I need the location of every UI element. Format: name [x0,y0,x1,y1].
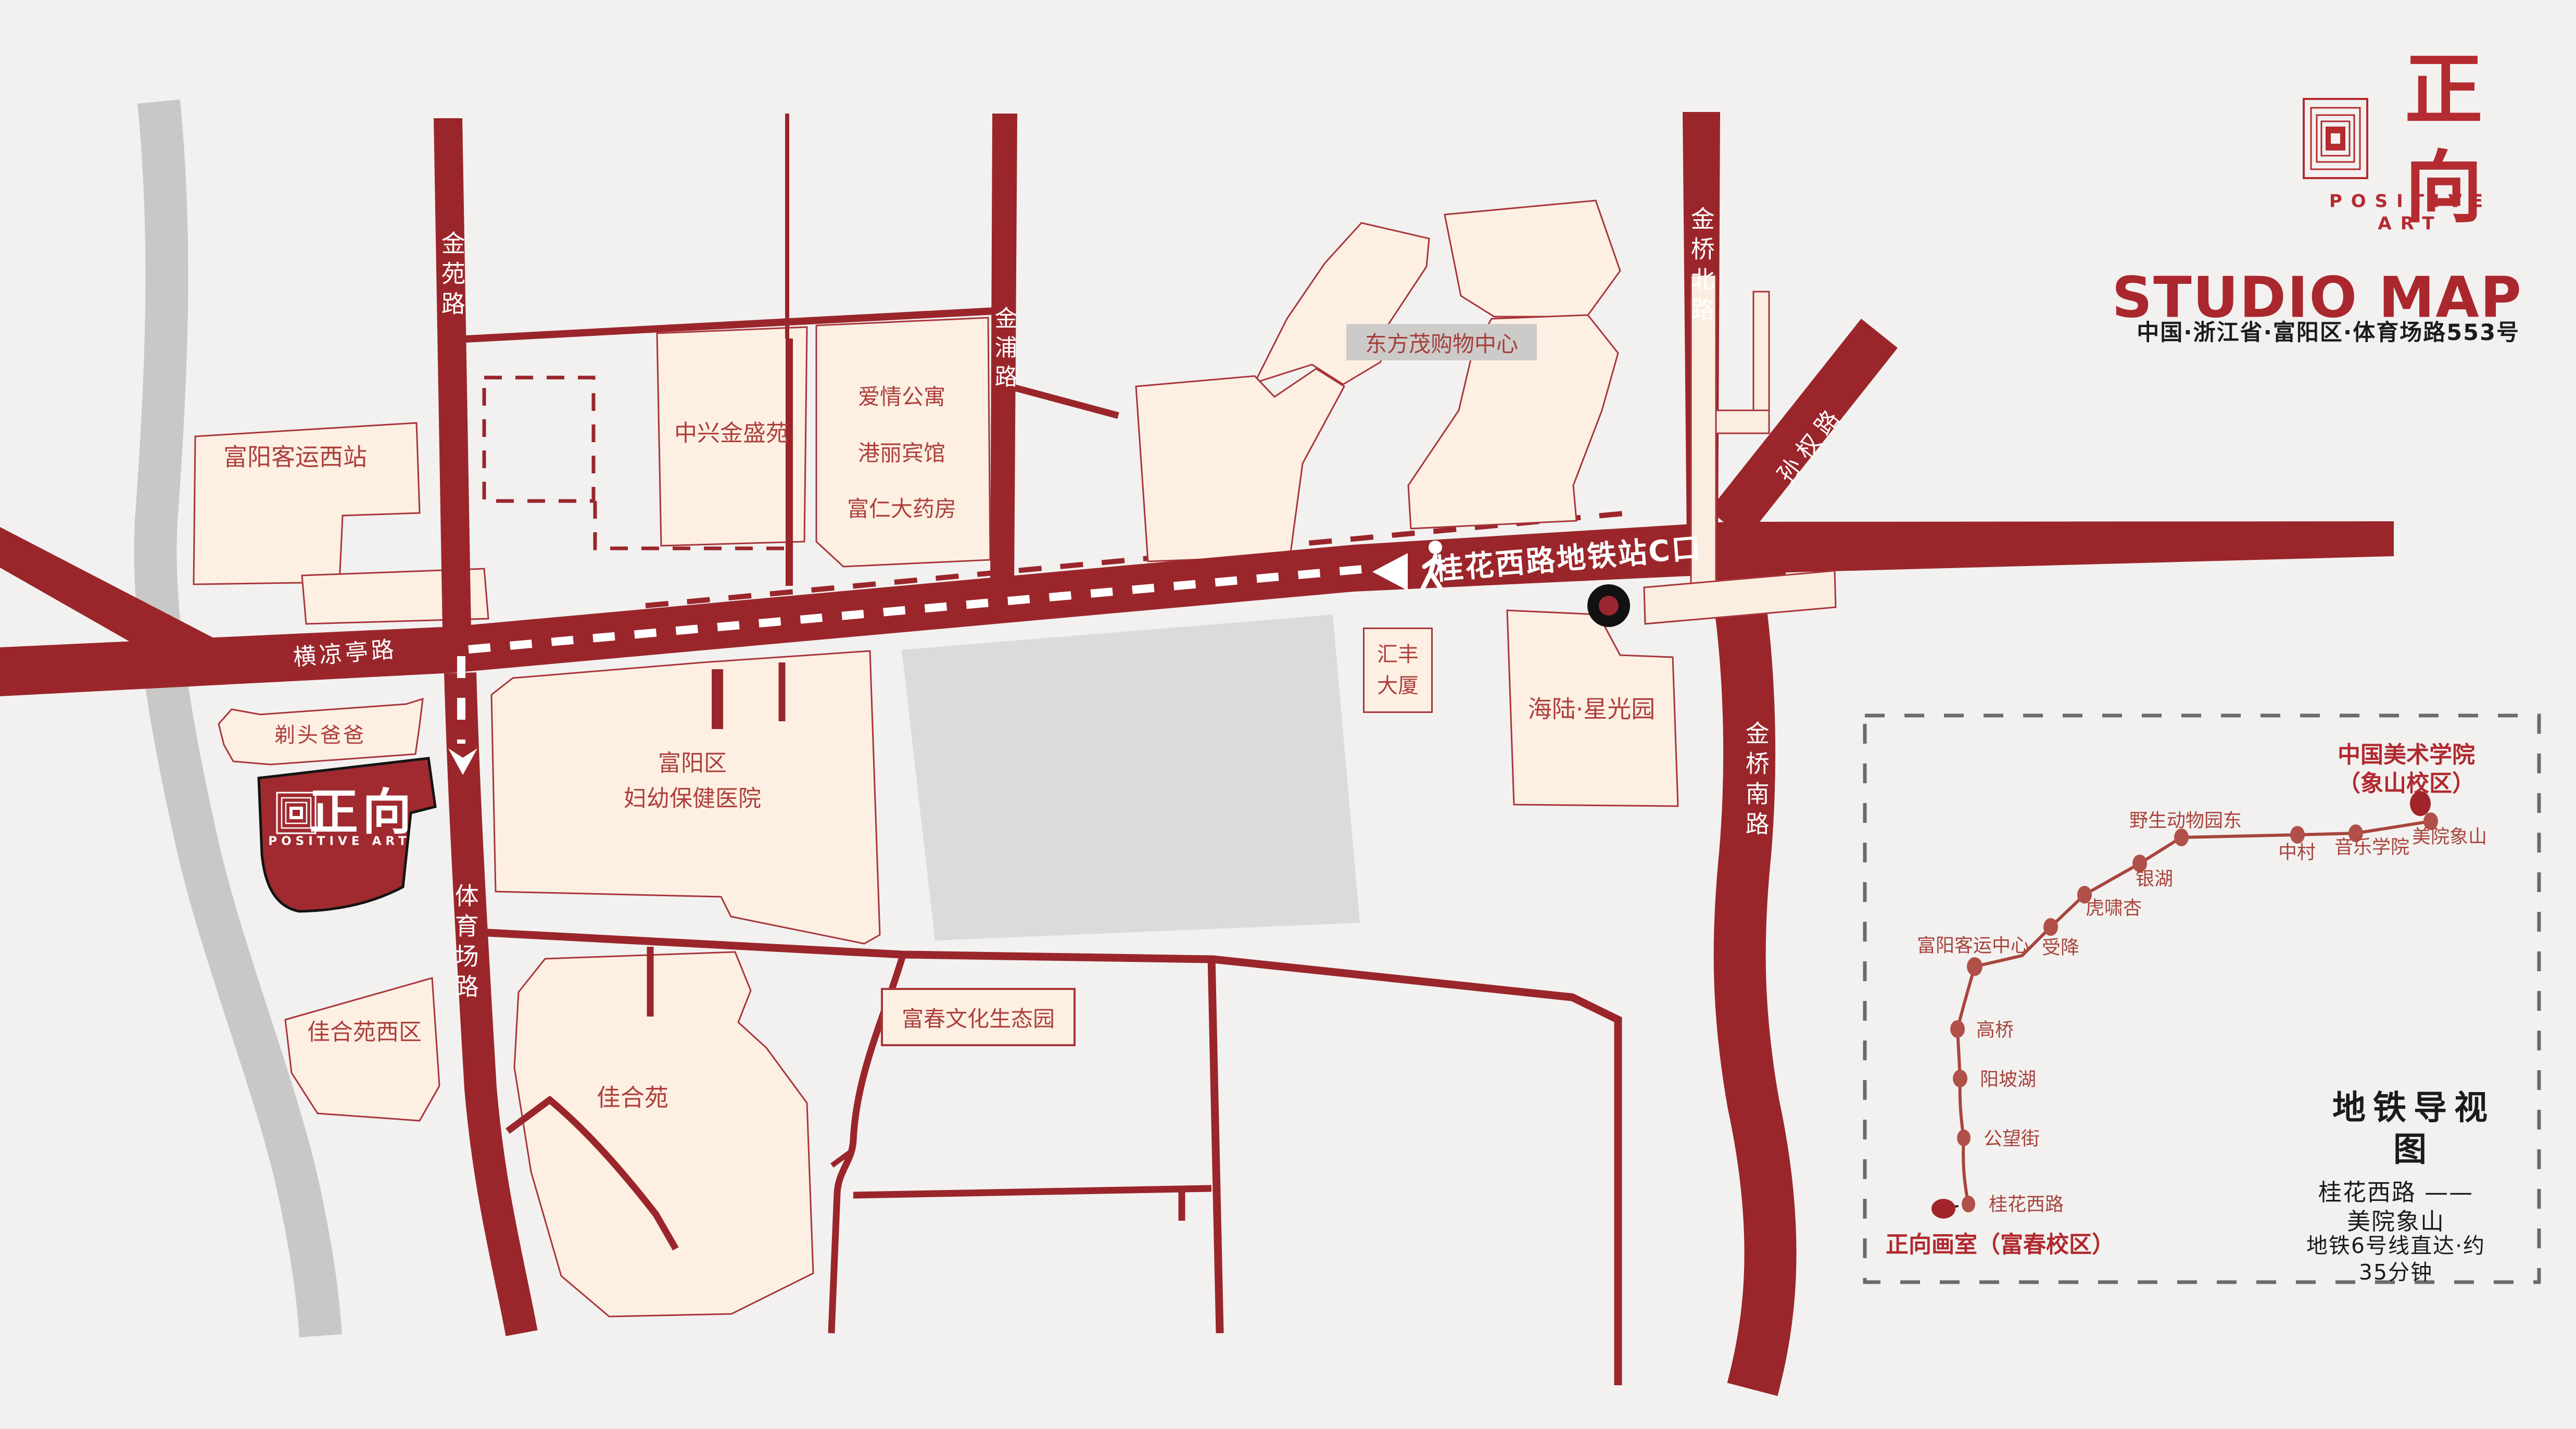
place-label-apartments: 爱情公寓 港丽宾馆 富仁大药房 [847,383,956,523]
brand-subtitle: POSITIVE ART [2328,191,2493,235]
road-label-jinqiao-south: 金桥南路 [1740,721,1771,842]
metro-start-label: 正向画室（富春校区） [1886,1231,2115,1259]
metro-diagram-title: 地铁导视图 [2332,1087,2495,1171]
studio-logo-subtitle: POSITIVE ART [268,834,410,849]
station-exit-marker-center [1599,596,1619,616]
place-label-jiaheyuan: 佳合苑 [597,1083,668,1113]
road-label-jinyuan: 金苑路 [436,231,466,321]
metro-end-label: 中国美术学院（象山校区） [2321,741,2491,798]
station-label-yangpohu: 阳坡湖 [1980,1068,2036,1092]
station-label-gongwangjie: 公望街 [1984,1127,2040,1151]
place-label-fuyang-west-bus: 富阳客运西站 [223,442,367,472]
station-label-fuyangkeyun: 富阳客运中心 [1917,934,2029,958]
place-label-hailu: 海陆·星光园 [1528,694,1656,724]
place-label-fuchun-park: 富春文化生态园 [881,988,1076,1046]
metro-dot-studio [1931,1199,1955,1219]
station-label-meiyuanxiangshan: 美院象山 [2412,825,2487,849]
road-label-tiyuchang: 体育场路 [450,883,480,1004]
place-label-zhongxing: 中兴金盛苑 [674,419,789,448]
gray-block [902,615,1360,941]
road-label-jinqiao-north: 金桥北路 [1686,206,1716,327]
corridor-east-vertical [1753,292,1769,412]
building-mall-north [1445,200,1620,317]
place-label-jiaheyuan-west: 佳合苑西区 [307,1018,422,1047]
road-label-jinpu: 金浦路 [990,306,1018,394]
studio-map-poster: 金苑路 金浦路 金桥北路 孙权路 金桥南路 体育场路 横凉亭路 桂花西路地铁站C… [0,0,2576,1429]
station-label-yeshengdongwuyuandong: 野生动物园东 [2129,809,2242,833]
station-label-shouxiang: 受降 [2042,936,2079,960]
metro-route-label: 桂花西路 —— 美院象山 [2306,1178,2486,1237]
map-canvas [0,0,2576,1429]
corridor-east-connector [1716,410,1769,433]
place-label-hospital: 富阳区 妇幼保健医院 [624,746,761,817]
place-label-titou: 剃头爸爸 [274,722,366,748]
station-label-yinyuexueyuan: 音乐学院 [2334,836,2409,859]
station-label-yinhu: 银湖 [2136,868,2173,891]
place-label-huifeng: 汇丰 大厦 [1363,628,1433,713]
station-label-huxiaoxing: 虎啸杏 [2086,897,2142,920]
station-label-gaoqiao: 高桥 [1976,1019,2014,1042]
brand-address: 中国·浙江省·富阳区·体育场路553号 [2137,319,2520,347]
place-label-dongfangmao: 东方茂购物中心 [1346,324,1537,360]
metro-duration-label: 地铁6号线直达·约35分钟 [2306,1233,2486,1286]
station-label-guihuaxilu: 桂花西路 [1989,1193,2064,1217]
station-label-zhongcun: 中村 [2278,841,2316,864]
